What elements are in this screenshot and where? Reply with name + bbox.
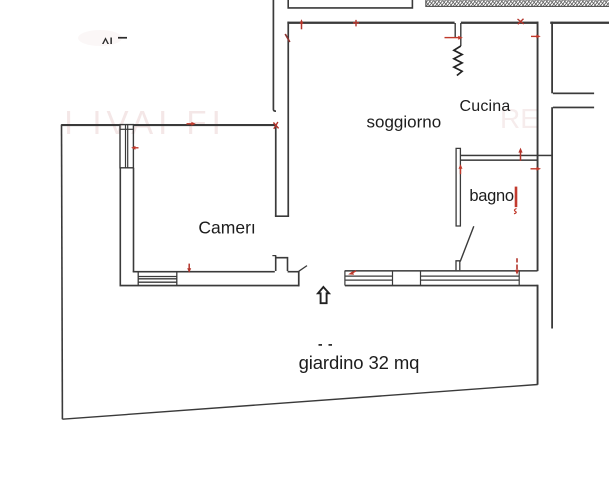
svg-text:Cucina: Cucina — [460, 98, 511, 115]
svg-text:I IVAI FI: I IVAI FI — [64, 104, 226, 141]
svg-text:giardino 32 mq: giardino 32 mq — [299, 352, 420, 373]
svg-text:Camerı: Camerı — [198, 218, 255, 238]
svg-text:bagno: bagno — [469, 187, 514, 205]
svg-text:soggiorno: soggiorno — [367, 113, 442, 132]
